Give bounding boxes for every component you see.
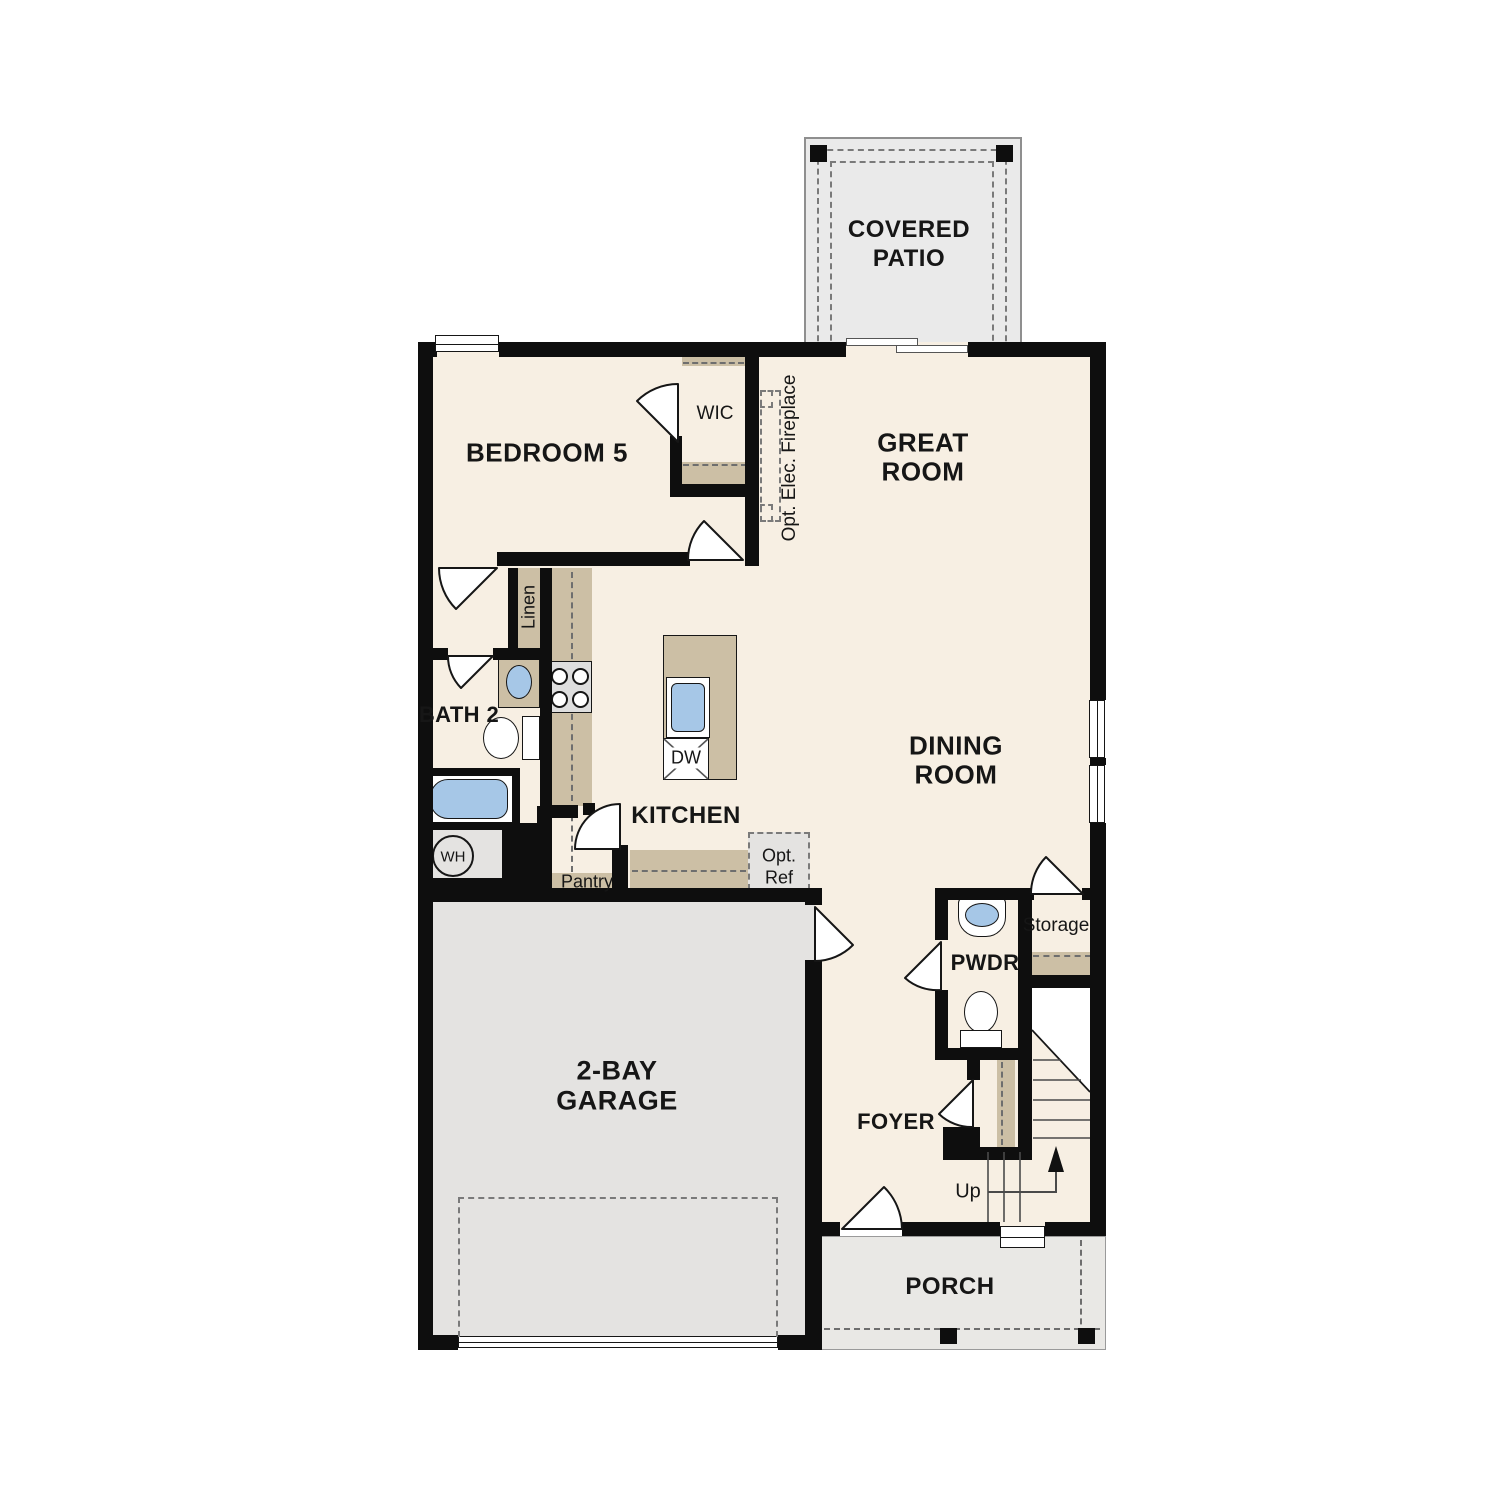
storage-door-swing: [1031, 857, 1083, 894]
dining-label-line1: DINING: [909, 731, 1003, 762]
opt-ref-label-line1: Opt.: [762, 846, 796, 867]
garage-entry-door-swing: [815, 907, 853, 961]
stairs-up-arrow-head: [1048, 1146, 1064, 1172]
floor-plan-canvas: COVERED PATIO BEDROOM 5 WIC GREAT ROOM O…: [0, 0, 1500, 1500]
storage-label: Storage: [1023, 915, 1090, 937]
pwdr-door-swing: [905, 942, 941, 990]
bedroom-hall-door-swing: [439, 568, 497, 609]
pantry-label: Pantry: [561, 872, 613, 893]
porch-label: PORCH: [905, 1273, 994, 1301]
garage-label-line2: GARAGE: [556, 1086, 678, 1117]
opt-ref-label-line2: Ref: [765, 868, 793, 889]
bath2-label: BATH 2: [419, 702, 499, 728]
pwdr-label: PWDR: [951, 950, 1020, 976]
plan-linework-overlay: [0, 0, 1500, 1500]
pantry-door-swing: [575, 804, 620, 849]
garage-label-line1: 2-BAY: [576, 1056, 657, 1087]
great-room-label-line2: ROOM: [882, 457, 965, 488]
foyer-label: FOYER: [857, 1109, 935, 1135]
front-door-swing: [842, 1187, 902, 1229]
covered-patio-label-line1: COVERED: [848, 216, 970, 244]
opt-fireplace-label: Opt. Elec. Fireplace: [779, 375, 801, 542]
great-room-label-line1: GREAT: [877, 428, 969, 459]
bedroom5-label: BEDROOM 5: [466, 438, 628, 469]
covered-patio-label-line2: PATIO: [873, 245, 945, 273]
bedroom5-door-swing: [688, 521, 743, 560]
up-label: Up: [955, 1181, 981, 1204]
wic-door-swing: [637, 384, 678, 442]
bath2-door-swing: [448, 656, 493, 688]
foyer-closet-door-swing: [939, 1080, 973, 1127]
dining-label-line2: ROOM: [915, 760, 998, 791]
linen-label: Linen: [519, 585, 540, 629]
stairs-treads: [988, 1060, 1090, 1222]
wic-label: WIC: [697, 403, 734, 425]
kitchen-label: KITCHEN: [631, 802, 740, 830]
water-heater-label: WH: [441, 849, 466, 866]
stairs-up-arrow-line: [988, 1170, 1056, 1192]
dishwasher-label: DW: [669, 748, 703, 769]
